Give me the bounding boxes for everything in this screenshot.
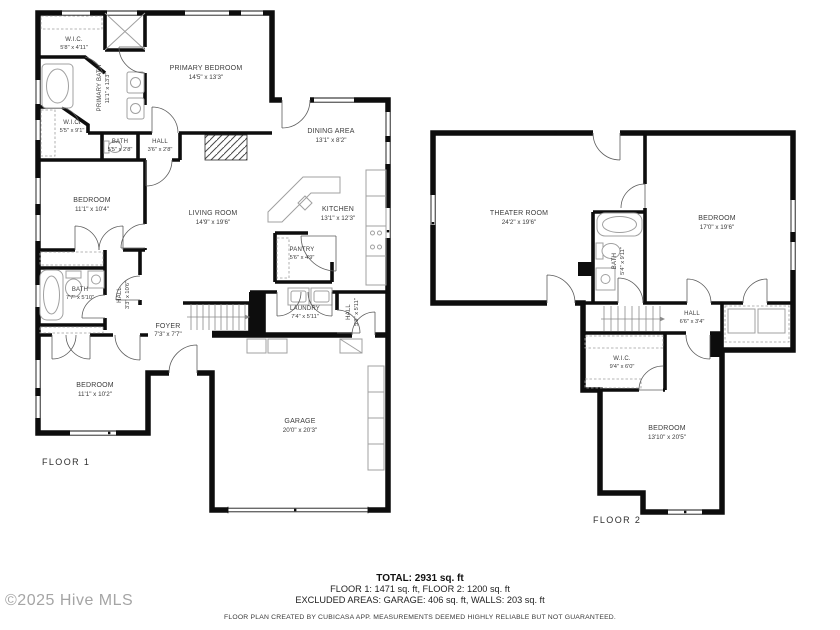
room-label-wic2: W.I.C. — [63, 120, 81, 126]
room-label-dining: DINING AREA — [307, 128, 354, 135]
room-label-hall4: HALL — [684, 311, 700, 317]
room-label-wic3: W.I.C. — [613, 356, 631, 362]
sink — [596, 268, 615, 290]
sink — [127, 72, 144, 93]
room-label-hall3: HALL — [346, 304, 352, 320]
room-dims-hall4: 6'6" x 3'4" — [680, 319, 705, 325]
room-label-bath2: BATH — [72, 287, 88, 293]
room-label-bedroom2: BEDROOM — [76, 382, 114, 389]
room-label-primary-bedroom: PRIMARY BEDROOM — [170, 65, 243, 72]
room-dims-hall2: 3'3" x 10'6" — [125, 281, 131, 309]
floor2-label: FLOOR 2 — [593, 515, 641, 525]
room-dims-wic3: 9'4" x 6'0" — [610, 364, 635, 370]
room-dims-hall3: 5'9" x 5'11" — [354, 298, 360, 326]
room-dims-bedroom3: 17'0" x 19'6" — [700, 224, 735, 231]
room-label-wic1: W.I.C. — [65, 37, 83, 43]
room-dims-bedroom2: 11'1" x 10'2" — [78, 391, 112, 398]
room-dims-wic1: 5'8" x 4'11" — [60, 45, 88, 51]
room-dims-bath3: 5'4" x 9'11" — [620, 247, 626, 275]
sink — [88, 271, 104, 288]
room-dims-garage: 20'0" x 20'3" — [283, 427, 318, 434]
room-dims-kitchen: 13'1" x 12'3" — [321, 215, 356, 222]
room-label-bath3: BATH — [612, 253, 618, 269]
room-label-bedroom4: BEDROOM — [648, 425, 686, 432]
room-dims-wic2: 5'5" x 9'1" — [60, 128, 85, 134]
floor-plan-image: W.I.C. 5'8" x 4'11" PRIMARY BATH 11'1" x… — [0, 0, 840, 630]
room-dims-hall-small: 3'6" x 2'8" — [148, 147, 173, 153]
room-dims-laundry: 7'4" x 5'11" — [291, 314, 319, 320]
room-label-bath-small: BATH — [112, 139, 128, 145]
room-label-living: LIVING ROOM — [189, 210, 238, 217]
summary-total: TOTAL: 2931 sq. ft — [376, 573, 464, 584]
room-label-garage: GARAGE — [284, 418, 315, 425]
room-label-pantry: PANTRY — [290, 247, 315, 253]
room-dims-dining: 13'1" x 8'2" — [315, 137, 346, 144]
summary-floors: FLOOR 1: 1471 sq. ft, FLOOR 2: 1200 sq. … — [330, 584, 510, 594]
room-dims-living: 14'9" x 19'6" — [196, 219, 231, 226]
room-label-bedroom3: BEDROOM — [698, 215, 736, 222]
toilet — [66, 271, 81, 278]
floor1-label: FLOOR 1 — [42, 457, 90, 467]
room-label-laundry: LAUNDRY — [290, 306, 320, 312]
disclaimer: FLOOR PLAN CREATED BY CUBICASA APP. MEAS… — [224, 614, 616, 621]
room-dims-pantry: 5'6" x 4'9" — [290, 255, 315, 261]
room-dims-primary-bath: 11'1" x 13'3" — [105, 73, 111, 104]
front-door-opening — [169, 370, 197, 376]
sink — [127, 98, 144, 119]
room-label-kitchen: KITCHEN — [322, 206, 354, 213]
room-dims-foyer: 7'3" x 7'7" — [154, 331, 182, 338]
room-label-bedroom1: BEDROOM — [73, 197, 111, 204]
room-label-foyer: FOYER — [155, 323, 180, 330]
summary-excluded: EXCLUDED AREAS: GARAGE: 406 sq. ft, WALL… — [295, 595, 545, 605]
room-label-hall2: HALL — [117, 287, 123, 303]
room-dims-theater: 24'2" x 19'6" — [502, 219, 537, 226]
room-label-hall-small: HALL — [152, 139, 168, 145]
room-dims-bath2: 7'7" x 5'10" — [66, 295, 94, 301]
watermark: ©2025 Hive MLS — [5, 592, 133, 609]
hatched-area — [205, 135, 247, 160]
room-dims-primary-bedroom: 14'5" x 13'3" — [189, 74, 224, 81]
room-dims-bedroom4: 13'10" x 20'5" — [648, 434, 686, 441]
room-dims-bedroom1: 11'1" x 10'4" — [75, 206, 109, 213]
room-dims-bath-small: 5'5" x 2'8" — [108, 147, 133, 153]
room-label-theater: THEATER ROOM — [490, 210, 548, 217]
room-label-primary-bath: PRIMARY BATH — [97, 65, 103, 112]
background — [0, 0, 840, 630]
